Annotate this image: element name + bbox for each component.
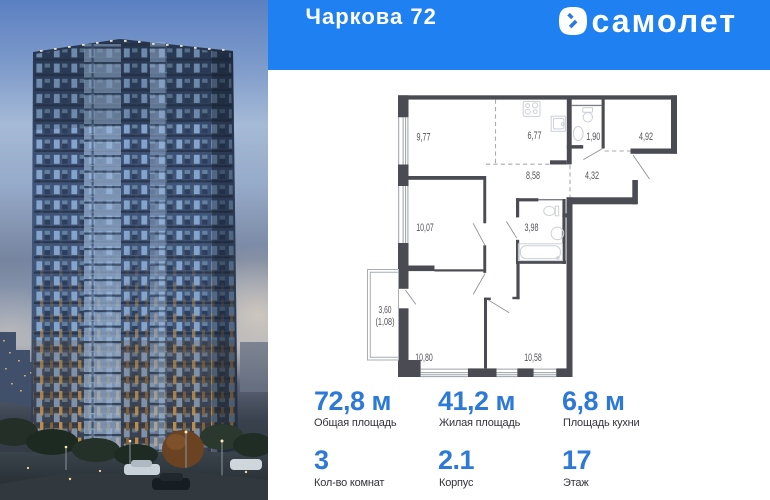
svg-text:10,07: 10,07 bbox=[416, 222, 434, 234]
svg-text:4,92: 4,92 bbox=[639, 131, 653, 143]
svg-text:8,58: 8,58 bbox=[526, 170, 540, 182]
svg-text:9,77: 9,77 bbox=[417, 132, 431, 144]
svg-text:6,77: 6,77 bbox=[528, 130, 542, 142]
svg-text:(1,08): (1,08) bbox=[376, 316, 395, 328]
svg-text:10,80: 10,80 bbox=[415, 352, 433, 364]
svg-text:3,98: 3,98 bbox=[525, 222, 539, 234]
svg-text:4,32: 4,32 bbox=[585, 170, 599, 182]
svg-text:1,90: 1,90 bbox=[586, 131, 600, 143]
svg-text:3,60: 3,60 bbox=[379, 304, 392, 316]
svg-text:10,58: 10,58 bbox=[524, 352, 542, 364]
